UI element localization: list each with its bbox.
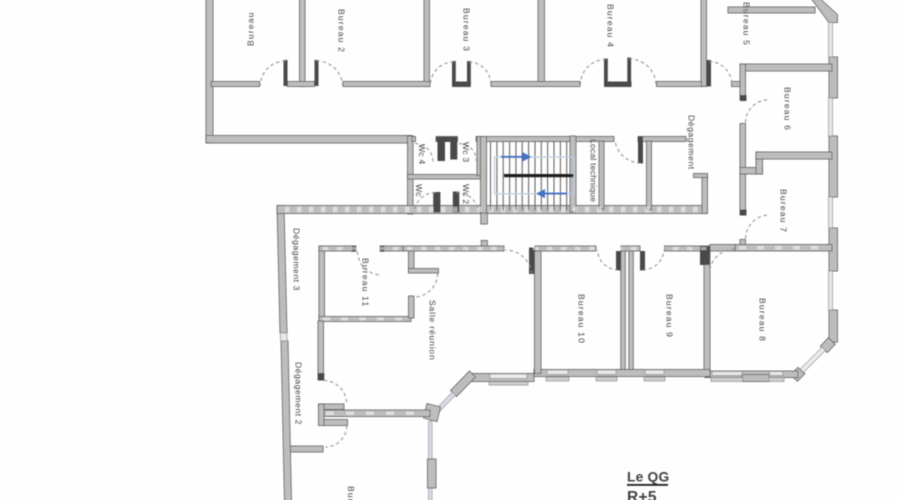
svg-text:Bureau 11: Bureau 11 xyxy=(361,258,371,307)
svg-text:Bureau 5: Bureau 5 xyxy=(742,2,752,46)
svg-text:Bureau 4: Bureau 4 xyxy=(606,4,616,48)
svg-text:Wc 2: Wc 2 xyxy=(461,184,471,204)
svg-text:Bureau 2: Bureau 2 xyxy=(337,9,347,53)
svg-text:R+5: R+5 xyxy=(627,489,657,500)
svg-text:Bureau 6: Bureau 6 xyxy=(783,87,793,131)
svg-text:Wc 4: Wc 4 xyxy=(417,144,427,164)
svg-text:Bureau 8: Bureau 8 xyxy=(758,298,768,342)
svg-text:Dégagement: Dégagement xyxy=(687,115,697,170)
svg-text:Bureau 1: Bureau 1 xyxy=(346,486,356,500)
svg-text:Bureau 3: Bureau 3 xyxy=(462,8,472,52)
svg-text:Dégagement 2: Dégagement 2 xyxy=(294,362,304,425)
svg-text:Wc: Wc xyxy=(414,184,424,197)
svg-text:Dégagement 3: Dégagement 3 xyxy=(292,228,302,291)
svg-text:Le QG: Le QG xyxy=(627,470,669,485)
svg-text:Wc 3: Wc 3 xyxy=(461,142,471,162)
svg-text:Bureau 9: Bureau 9 xyxy=(665,294,675,338)
svg-text:Bureau 10: Bureau 10 xyxy=(577,294,587,344)
svg-text:Salle réunion: Salle réunion xyxy=(428,300,438,361)
svg-text:Bureau: Bureau xyxy=(246,11,256,46)
svg-text:Bureau 7: Bureau 7 xyxy=(779,189,789,233)
svg-text:Local technique: Local technique xyxy=(589,139,599,202)
